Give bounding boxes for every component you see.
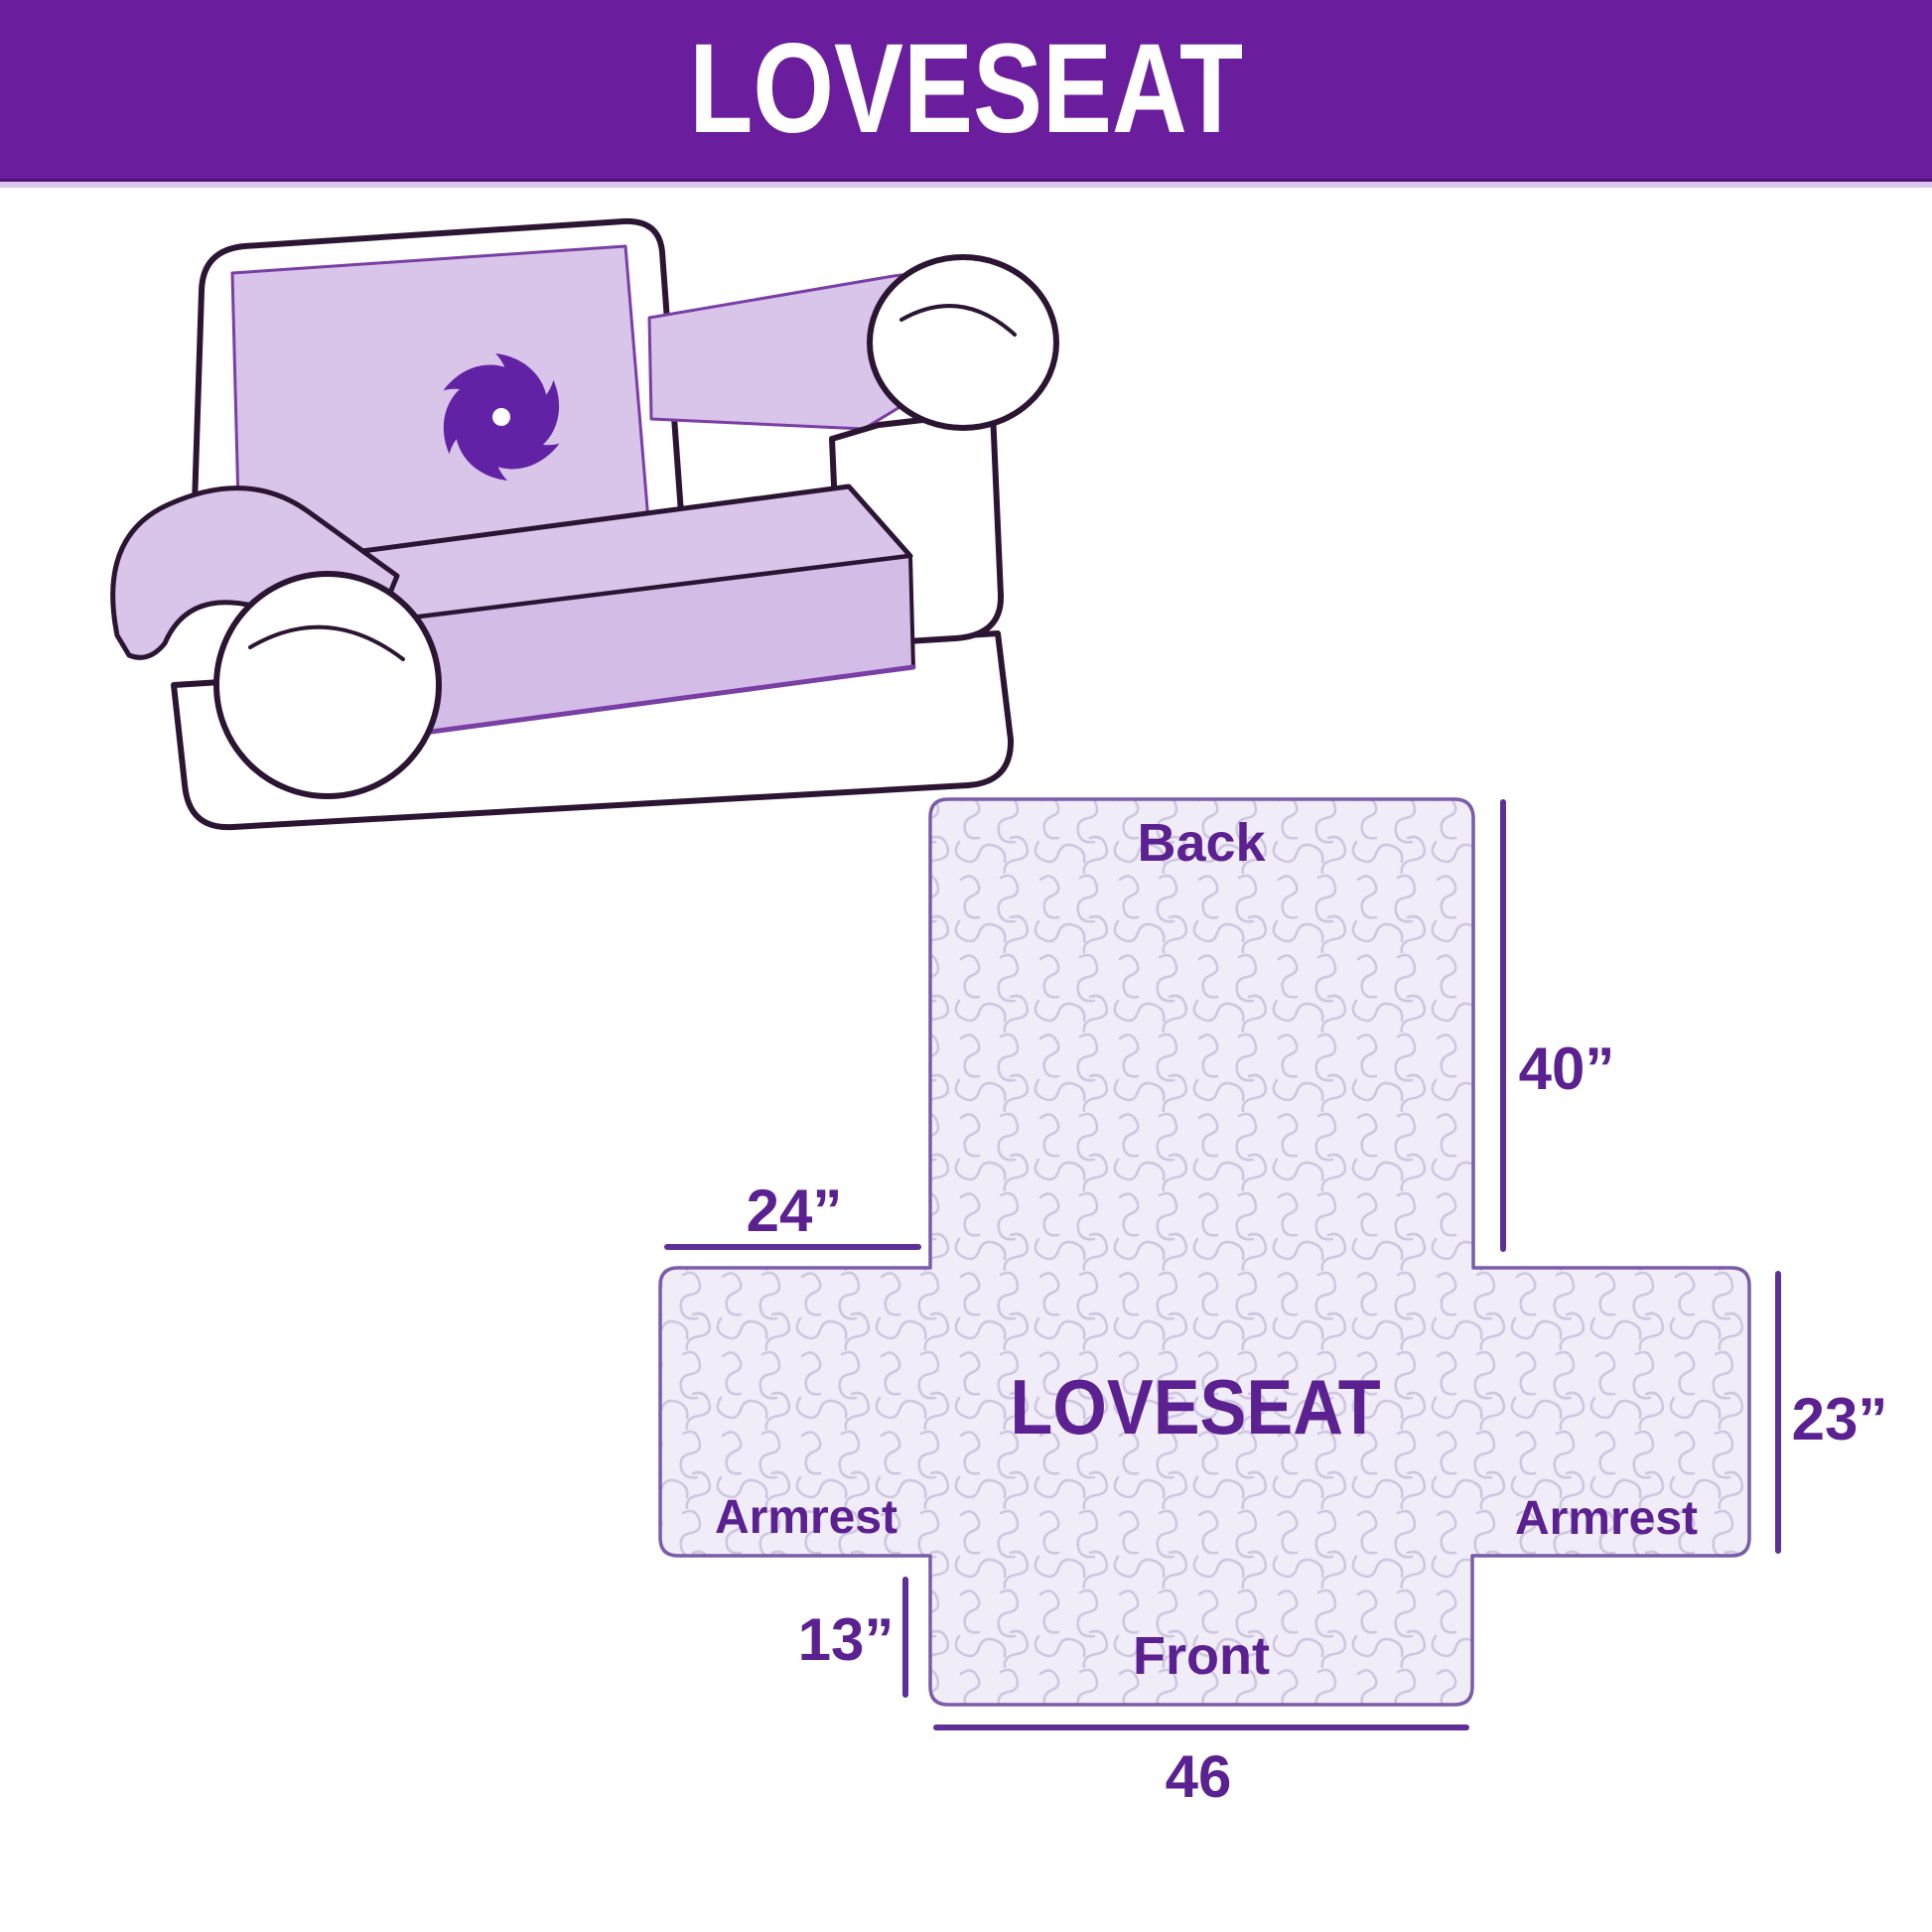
dim-back-height: 40” — [1519, 1039, 1615, 1099]
front-panel-label: Front — [1133, 1629, 1270, 1683]
back-panel-label: Back — [1137, 816, 1265, 870]
diagram-center-label: LOVESEAT — [1010, 1368, 1380, 1446]
dim-side-height: 23” — [1792, 1390, 1888, 1449]
header-underline — [0, 182, 1932, 188]
dim-front-drop: 13” — [798, 1610, 895, 1670]
armrest-left-label: Armrest — [715, 1494, 897, 1542]
infographic-page: LOVESEAT — [0, 0, 1932, 1932]
header-banner: LOVESEAT — [0, 0, 1932, 182]
dim-shoulder-width: 24” — [747, 1181, 843, 1241]
armrest-right-label: Armrest — [1515, 1495, 1698, 1543]
page-title: LOVESEAT — [689, 26, 1243, 153]
dim-front-width: 46 — [1166, 1747, 1232, 1807]
